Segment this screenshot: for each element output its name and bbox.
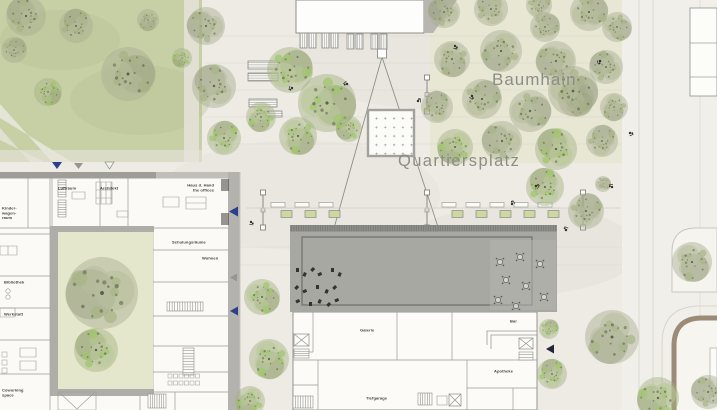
main-building-floorplan	[293, 312, 537, 410]
site-plan-drawing	[0, 0, 717, 410]
planter	[548, 211, 559, 218]
fountain	[368, 110, 414, 156]
stairs-icon	[294, 349, 309, 358]
main-building	[290, 225, 557, 410]
bench	[514, 203, 528, 208]
room-label-apotheke: Apotheke	[494, 369, 513, 374]
room-label-offices-line2: the offices	[182, 188, 214, 193]
bench	[309, 33, 316, 48]
bench	[319, 203, 333, 208]
roof-furniture-icon	[316, 285, 319, 289]
planter	[476, 211, 487, 218]
planter	[281, 211, 292, 218]
room-label-tiefgarage: Tiefgarage	[366, 396, 387, 401]
stairs-icon	[167, 302, 203, 311]
stairs-icon	[58, 200, 66, 217]
bench	[271, 203, 285, 208]
room-label-werkstatt: Werkstatt	[4, 312, 23, 317]
roof-furniture-icon	[309, 302, 312, 306]
mast-head	[378, 49, 387, 58]
room-label-schulungsraeume: Schulungsräume	[172, 240, 206, 245]
room-label-coworking-line2: space	[2, 393, 24, 398]
room-label-architekt: Architekt	[100, 186, 118, 191]
bench	[490, 203, 504, 208]
room-label-kinderwagenraum: Kinder- wagen- raum	[2, 206, 17, 220]
room-label-coworking: Coworking space	[2, 388, 24, 398]
north-wall	[0, 172, 156, 179]
planter	[452, 211, 463, 218]
site-plan: Baumhain Quartiersplatz Luftraum Archite…	[0, 0, 717, 410]
courtyard-wall	[50, 226, 154, 232]
planter	[500, 211, 511, 218]
bench	[356, 34, 363, 49]
room-label-offices: Haus d. Hand the offices	[182, 183, 214, 193]
roof-furniture-icon	[296, 268, 299, 272]
courtyard-wall	[50, 226, 58, 394]
east-building	[690, 8, 717, 96]
room-label-bibliothek: Bibliothek	[4, 280, 24, 285]
room-label-kinder-line3: raum	[2, 216, 17, 221]
bench	[371, 34, 378, 49]
stairs-icon	[148, 394, 166, 408]
bench	[442, 203, 456, 208]
room-label-luftraum: Luftraum	[58, 186, 76, 191]
bench	[380, 34, 387, 49]
lawn-path	[0, 150, 202, 162]
roof-furniture-icon	[331, 268, 334, 272]
room-label-wohnen: Wohnen	[202, 256, 218, 261]
bench	[300, 33, 307, 48]
planter	[524, 211, 535, 218]
bench	[466, 203, 480, 208]
north-wall	[156, 172, 228, 179]
stairs-icon	[293, 396, 313, 408]
courtyard-wall	[50, 389, 154, 396]
stairs-icon	[183, 348, 194, 375]
stairs-icon	[418, 393, 432, 405]
room-label-bar: Bar	[510, 319, 517, 324]
roof-edge-hatch	[290, 225, 557, 232]
bench	[295, 203, 309, 208]
north-building	[296, 0, 424, 33]
room-label-galerie: Galerie	[360, 328, 374, 333]
area-label-baumhain: Baumhain	[492, 70, 577, 90]
stairs-icon	[519, 352, 533, 360]
area-label-quartiersplatz: Quartiersplatz	[398, 152, 520, 171]
bench	[322, 33, 329, 48]
bench	[347, 34, 354, 49]
east-wall	[228, 172, 240, 410]
planter	[329, 211, 340, 218]
planter	[305, 211, 316, 218]
bench	[331, 33, 338, 48]
